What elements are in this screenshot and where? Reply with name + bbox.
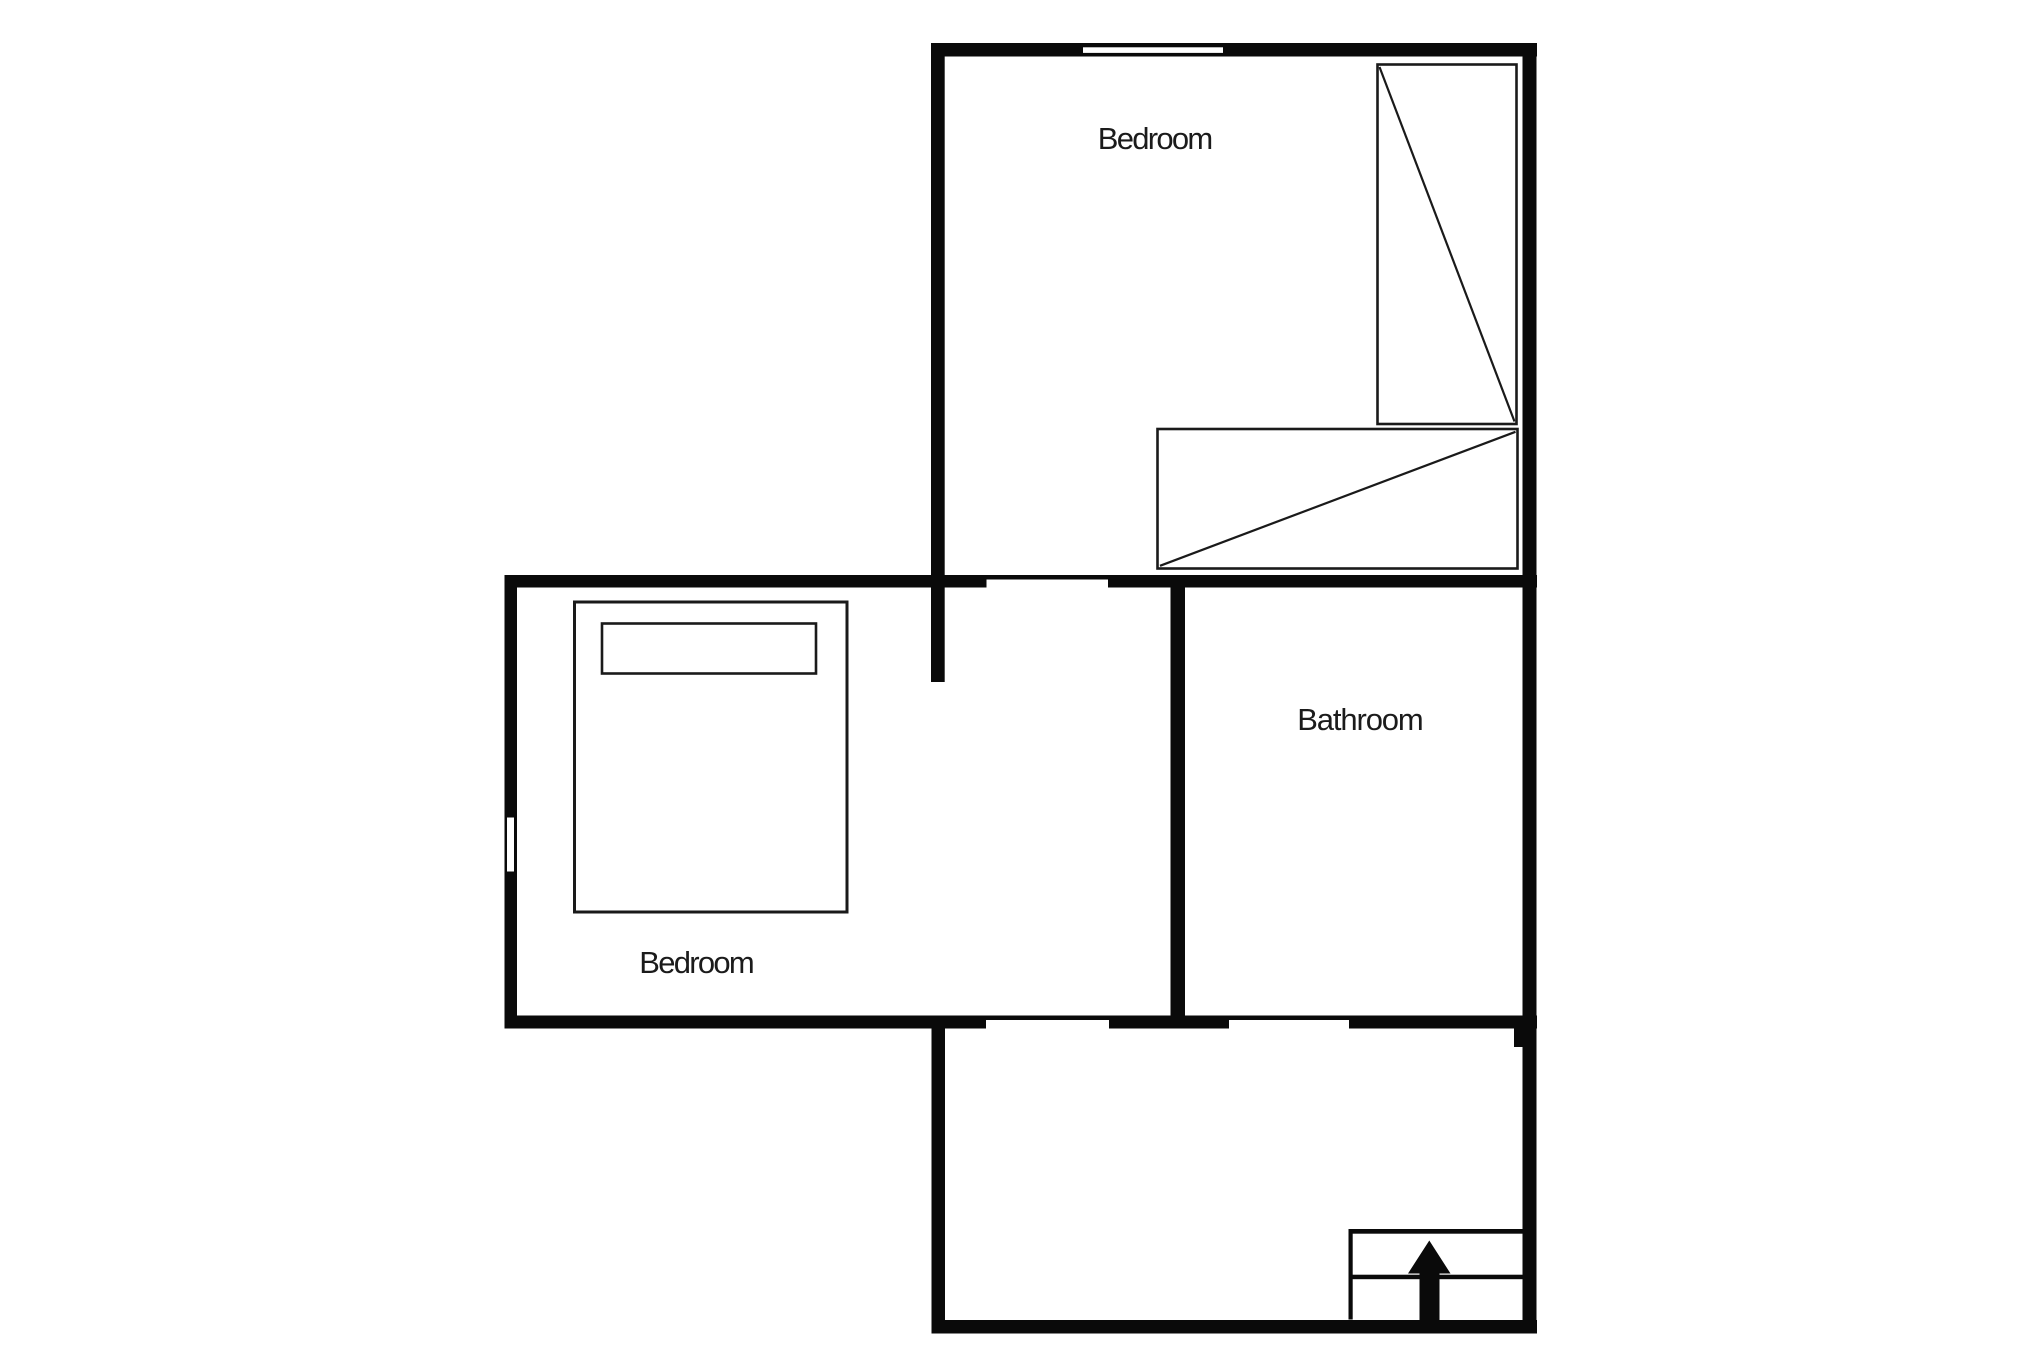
svg-text:Bedroom: Bedroom <box>1098 121 1214 156</box>
svg-text:Bathroom: Bathroom <box>1297 702 1424 737</box>
svg-text:Bedroom: Bedroom <box>639 945 755 980</box>
